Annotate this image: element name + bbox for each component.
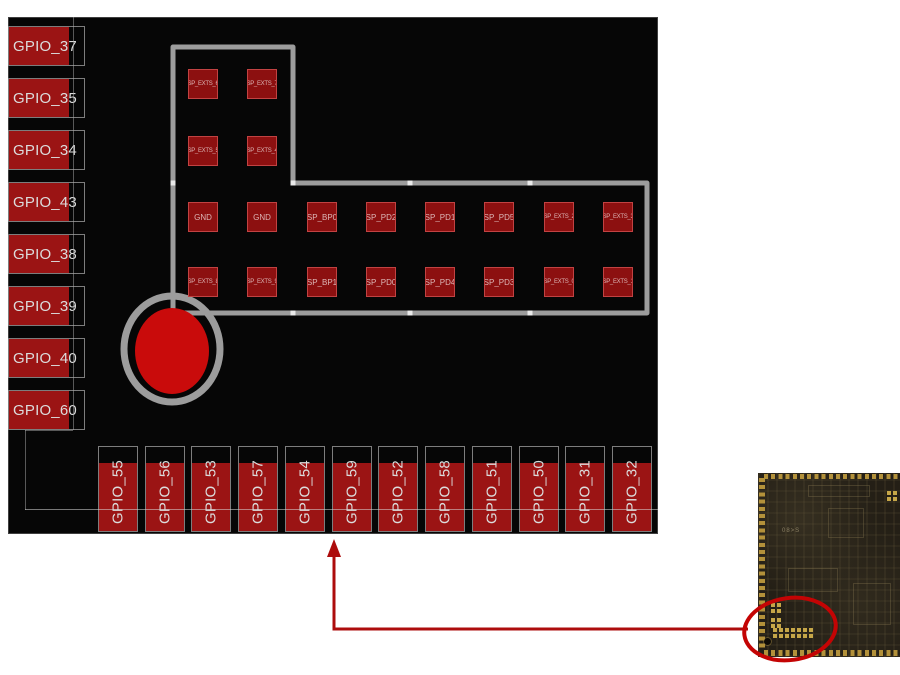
board-edge-line bbox=[25, 430, 73, 431]
pad-sp-exts-4: SP_EXTS_4 bbox=[247, 136, 277, 166]
pad-gpio-52: GPIO_52 bbox=[378, 446, 418, 532]
pad-label: SP_EXTS_1 bbox=[603, 279, 633, 285]
pad-label: GPIO_54 bbox=[297, 460, 314, 524]
pad-sp-bp1: SP_BP1 bbox=[307, 267, 337, 297]
pad-label: GPIO_55 bbox=[110, 460, 127, 524]
pad-sp-exts-2: SP_EXTS_2 bbox=[544, 202, 574, 232]
pad-label: SP_PD2 bbox=[366, 213, 396, 222]
pad-gpio-57: GPIO_57 bbox=[238, 446, 278, 532]
pcb-pad-cluster bbox=[771, 603, 781, 613]
pad-gpio-51: GPIO_51 bbox=[472, 446, 512, 532]
pcb-trace-block bbox=[808, 485, 870, 497]
pcb-castellation-top bbox=[764, 474, 900, 479]
pad-label: SP_PD5 bbox=[484, 213, 514, 222]
pad-label: GPIO_40 bbox=[13, 350, 77, 367]
pad-label: GPIO_39 bbox=[13, 298, 77, 315]
pcb-pad-cluster bbox=[887, 491, 897, 501]
pcb-castellation-bottom bbox=[764, 650, 900, 656]
pad-sp-exts-5: SP_EXTS_5 bbox=[188, 136, 218, 166]
pad-label: SP_BP0 bbox=[307, 213, 337, 222]
pad-label: GPIO_38 bbox=[13, 246, 77, 263]
pad-label: SP_EXTS_5 bbox=[188, 148, 218, 154]
pad-label: GPIO_50 bbox=[531, 460, 548, 524]
pad-label: SP_EXTS_9 bbox=[247, 279, 277, 285]
pad-sp-pd0: SP_PD0 bbox=[366, 267, 396, 297]
pad-gpio-54: GPIO_54 bbox=[285, 446, 325, 532]
pad-sp-exts-9: SP_EXTS_9 bbox=[247, 267, 277, 297]
pad-label: GPIO_52 bbox=[390, 460, 407, 524]
pad-label: GND bbox=[253, 213, 271, 222]
pad-gpio-58: GPIO_58 bbox=[425, 446, 465, 532]
pad-sp-pd5: SP_PD5 bbox=[484, 202, 514, 232]
pad-label: SP_EXTS_4 bbox=[247, 148, 277, 154]
pad-sp-exts-6: SP_EXTS_6 bbox=[188, 69, 218, 99]
pcb-pad-cluster bbox=[771, 618, 781, 628]
pad-gpio-59: GPIO_59 bbox=[332, 446, 372, 532]
arrow-line bbox=[333, 554, 749, 629]
pad-label: SP_EXTS_7 bbox=[247, 81, 277, 87]
pad-label: SP_EXTS_0 bbox=[544, 279, 574, 285]
pad-label: GPIO_53 bbox=[203, 460, 220, 524]
pad-gpio-31: GPIO_31 bbox=[565, 446, 605, 532]
pad-gpio-32: GPIO_32 bbox=[612, 446, 652, 532]
pad-label: SP_EXTS_2 bbox=[544, 214, 574, 220]
pad-sp-pd1: SP_PD1 bbox=[425, 202, 455, 232]
pad-gpio-56: GPIO_56 bbox=[145, 446, 185, 532]
pcb-trace-block bbox=[788, 568, 838, 592]
pad-gnd-1: GND bbox=[188, 202, 218, 232]
pcb-fiducial-hole bbox=[764, 638, 771, 645]
pad-label: GPIO_37 bbox=[13, 38, 77, 55]
board-edge-line bbox=[25, 509, 658, 510]
pad-label: GPIO_31 bbox=[577, 460, 594, 524]
pad-gpio-50: GPIO_50 bbox=[519, 446, 559, 532]
board-edge-line bbox=[73, 17, 74, 430]
pad-sp-pd2: SP_PD2 bbox=[366, 202, 396, 232]
pad-label: SP_PD4 bbox=[425, 278, 455, 287]
arrow-head-icon bbox=[327, 539, 341, 557]
pad-sp-exts-0: SP_EXTS_0 bbox=[544, 267, 574, 297]
pad-label: SP_EXTS_3 bbox=[603, 214, 633, 220]
pad-label: GPIO_34 bbox=[13, 142, 77, 159]
pad-label: GPIO_59 bbox=[344, 460, 361, 524]
pad-sp-exts-8: SP_EXTS_8 bbox=[188, 267, 218, 297]
pad-gpio-53: GPIO_53 bbox=[191, 446, 231, 532]
pad-sp-pd3: SP_PD3 bbox=[484, 267, 514, 297]
pcb-trace-block bbox=[828, 508, 864, 538]
pcb-photo: 08>S bbox=[758, 473, 900, 657]
pad-label: GPIO_35 bbox=[13, 90, 77, 107]
board-edge-line bbox=[25, 430, 26, 510]
pad-gnd-2: GND bbox=[247, 202, 277, 232]
pad-label: SP_BP1 bbox=[307, 278, 337, 287]
pad-sp-pd4: SP_PD4 bbox=[425, 267, 455, 297]
pad-sp-bp0: SP_BP0 bbox=[307, 202, 337, 232]
pad-label: SP_EXTS_8 bbox=[188, 279, 218, 285]
pad-label: GPIO_56 bbox=[157, 460, 174, 524]
diagram-stage: GPIO_37 GPIO_35 GPIO_34 GPIO_43 GPIO_38 … bbox=[0, 0, 900, 675]
pcb-silkscreen-marking: 08>S bbox=[782, 528, 800, 534]
pcb-trace-block bbox=[853, 583, 891, 625]
pad-label: SP_EXTS_6 bbox=[188, 81, 218, 87]
pad-label: GPIO_58 bbox=[437, 460, 454, 524]
pcb-pad-cluster bbox=[773, 628, 813, 638]
pad-sp-exts-7: SP_EXTS_7 bbox=[247, 69, 277, 99]
pad-label: SP_PD1 bbox=[425, 213, 455, 222]
pcb-castellation-left bbox=[759, 478, 765, 651]
pad-label: SP_PD0 bbox=[366, 278, 396, 287]
pad-label: SP_PD3 bbox=[484, 278, 514, 287]
pad-gpio-55: GPIO_55 bbox=[98, 446, 138, 532]
pad-label: GND bbox=[194, 213, 212, 222]
pad-label: GPIO_43 bbox=[13, 194, 77, 211]
pad-label: GPIO_60 bbox=[13, 402, 77, 419]
pad-label: GPIO_32 bbox=[624, 460, 641, 524]
pad-sp-exts-1: SP_EXTS_1 bbox=[603, 267, 633, 297]
pad-label: GPIO_57 bbox=[250, 460, 267, 524]
pad-label: GPIO_51 bbox=[484, 460, 501, 524]
pad-sp-exts-3: SP_EXTS_3 bbox=[603, 202, 633, 232]
